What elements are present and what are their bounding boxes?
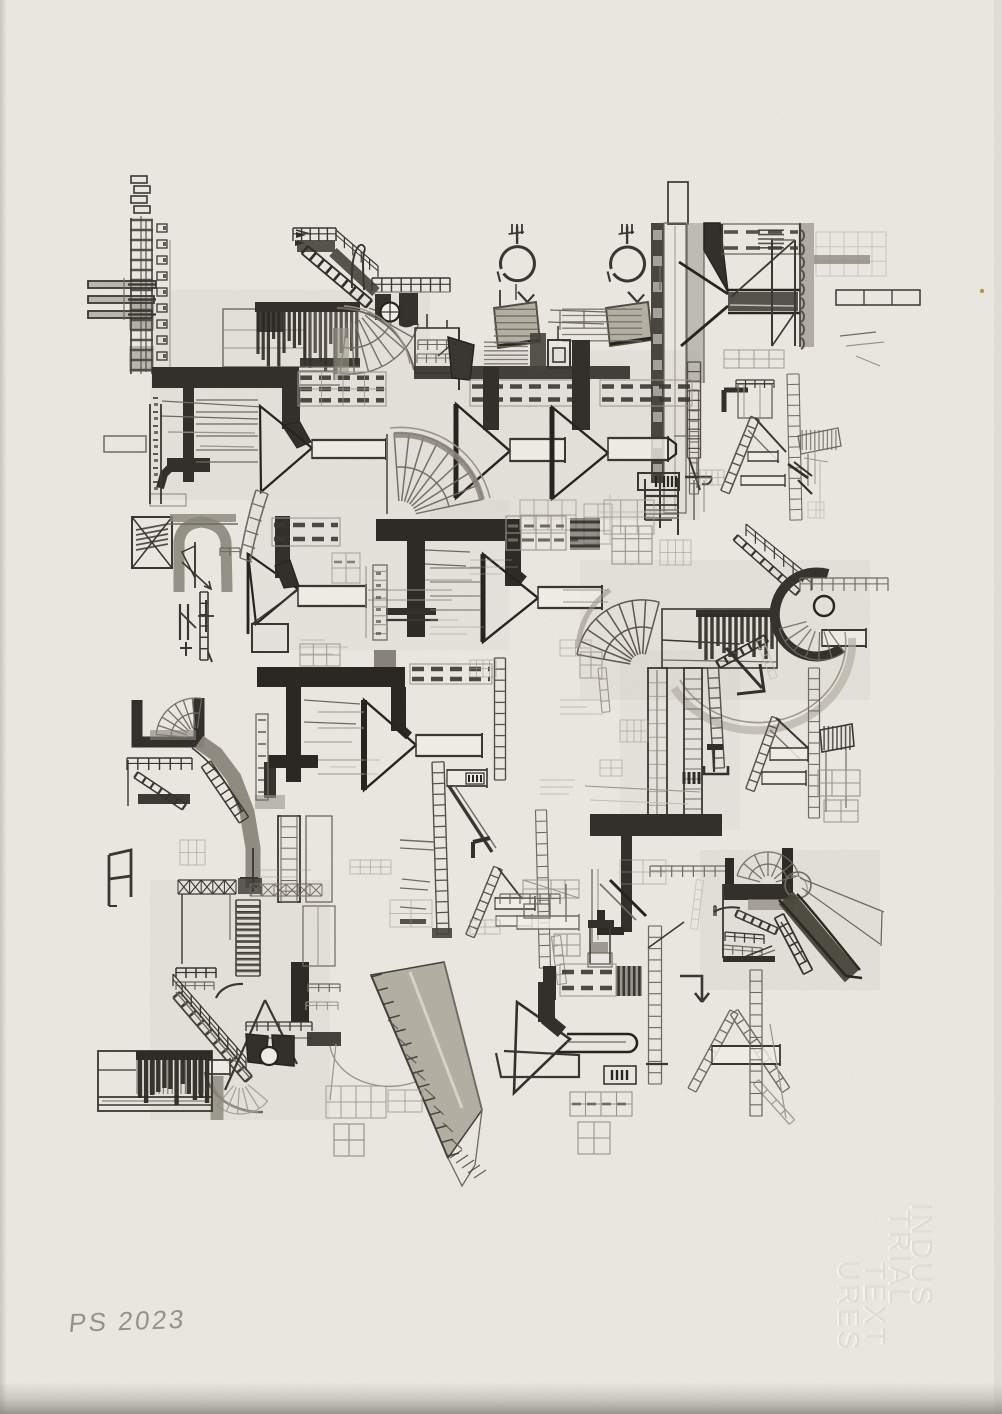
- svg-text:PS 2023: PS 2023: [67, 1304, 187, 1338]
- svg-text:URES: URES: [832, 1260, 864, 1353]
